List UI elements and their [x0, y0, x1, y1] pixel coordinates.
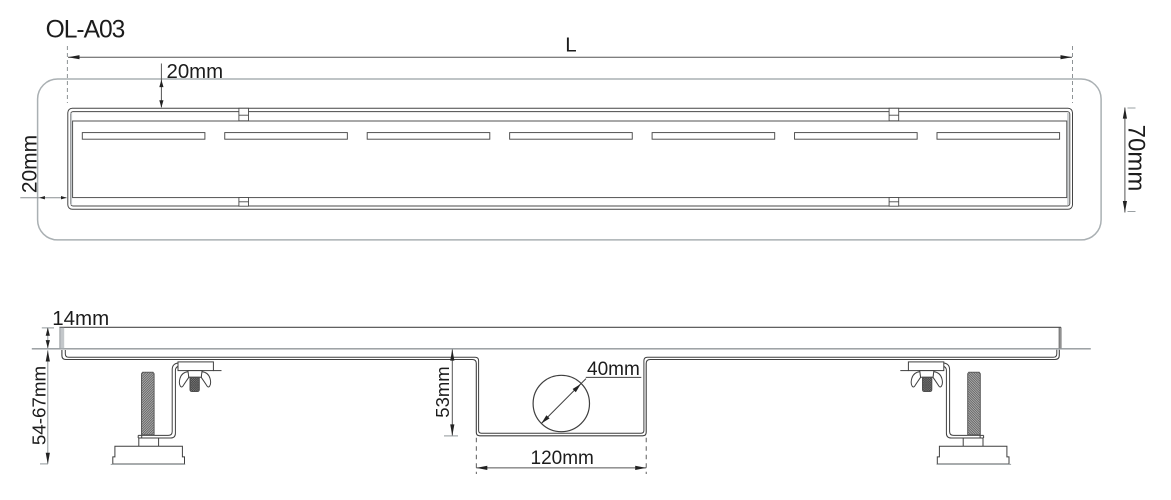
svg-text:OL-A03: OL-A03 [46, 16, 125, 43]
svg-text:20mm: 20mm [19, 135, 42, 193]
svg-text:20mm: 20mm [167, 61, 224, 83]
svg-text:L: L [565, 33, 576, 56]
svg-text:120mm: 120mm [531, 448, 594, 469]
svg-text:40mm: 40mm [587, 359, 640, 380]
svg-text:53mm: 53mm [432, 366, 453, 417]
svg-text:54-67mm: 54-67mm [28, 366, 49, 445]
svg-text:70mm: 70mm [1123, 125, 1150, 192]
svg-text:14mm: 14mm [52, 307, 109, 330]
